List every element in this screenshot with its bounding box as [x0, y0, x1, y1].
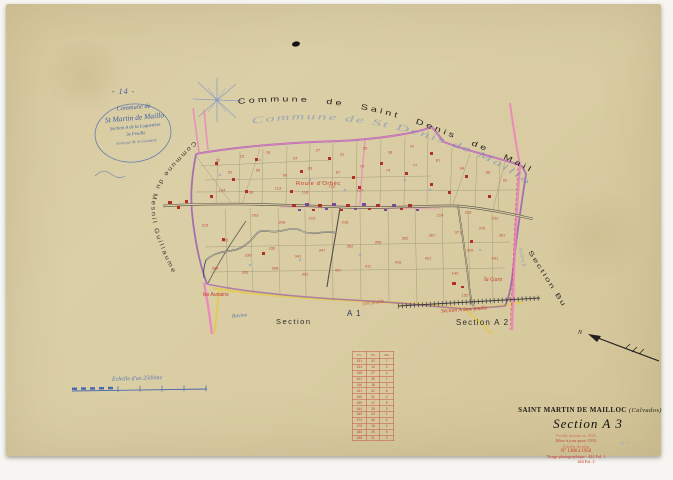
- table-column-header: N°s: [353, 352, 367, 359]
- parcel-number: 381: [499, 233, 506, 238]
- parcel-number: 367: [429, 233, 436, 238]
- gare-label: la Gare: [484, 277, 502, 283]
- table-cell: 3: [380, 435, 394, 441]
- parcel-number: 38: [388, 150, 392, 155]
- parcel-number: 421: [425, 256, 432, 261]
- parcel-number: 203: [252, 213, 259, 218]
- parcel-number: 52: [228, 170, 232, 175]
- parcel-number: 341: [295, 254, 302, 259]
- table-column-header: Obs: [380, 352, 394, 359]
- table-cell: 21: [366, 435, 380, 441]
- parcel-number: 35: [363, 146, 367, 151]
- parcel-number: 416: [395, 260, 402, 265]
- parcel-number: 228: [465, 210, 472, 215]
- parcel-number: 411: [365, 264, 371, 269]
- parcel-number: 27: [316, 148, 320, 153]
- parcel-number: 12: [216, 158, 220, 163]
- compass-rose-icon: [193, 78, 242, 122]
- parcel-number: 63: [308, 166, 312, 171]
- parcel-number: 74: [386, 168, 390, 173]
- parcel-number: 56: [256, 168, 260, 173]
- north-label: N: [577, 330, 583, 336]
- parcel-number: 376: [479, 226, 486, 231]
- parcel-number: 70: [360, 164, 364, 169]
- parcel-number: 358: [375, 240, 382, 245]
- north-arrow-icon: [588, 334, 659, 361]
- parcel-number: 113: [275, 186, 281, 191]
- table-cell: 188: [353, 435, 367, 441]
- parcel-number: 24: [293, 156, 297, 161]
- parcel-number: 84: [460, 166, 464, 171]
- hamlet-label: les Aunains: [203, 292, 229, 298]
- pencil-annotation: A =: [620, 441, 629, 447]
- parcel-number: 77: [413, 163, 417, 168]
- section-b-script: Section B: [517, 247, 526, 267]
- parcel-number: 127: [357, 188, 364, 193]
- parcel-number: 362: [402, 236, 409, 241]
- parcel-number: 347: [319, 248, 326, 253]
- parcel-number: 213: [309, 216, 316, 221]
- parcel-number: 336: [269, 246, 276, 251]
- parcel-number: 108: [247, 190, 254, 195]
- parcel-number: 224: [437, 213, 444, 218]
- parcel-number: 371: [455, 230, 462, 235]
- parcel-number: 152: [462, 293, 469, 298]
- section-a1-label: A 1: [347, 309, 362, 318]
- parcel-number: 330: [245, 253, 252, 258]
- section-a2-label: Section A 2: [456, 318, 509, 327]
- parcel-number: 81: [436, 158, 440, 163]
- parcel-number: 18: [266, 150, 270, 155]
- parcel-number: 15: [240, 154, 244, 159]
- parcel-number: 118: [302, 190, 308, 195]
- title-commune: SAINT MARTIN DE MAILLOC (Calvados): [514, 406, 666, 414]
- parcel-number: 388: [212, 266, 219, 271]
- table-row: 188213: [353, 435, 394, 441]
- table-column-header: N°s: [366, 352, 380, 359]
- parcel-number: 315: [202, 223, 209, 228]
- parcel-number: 393: [242, 270, 249, 275]
- table-header: N°sN°sObs: [353, 352, 394, 359]
- parcel-number: 208: [279, 220, 286, 225]
- parcel-number: 41: [410, 144, 414, 149]
- parcel-number: 67: [336, 170, 340, 175]
- parcel-number: 407: [335, 268, 342, 273]
- parcel-number: 218: [342, 220, 349, 225]
- parcel-number: 426: [467, 248, 474, 253]
- parcel-concordance-table: N°sN°sObs 131427134132138274141351146183…: [352, 351, 394, 441]
- parcel-number: 398: [272, 266, 279, 271]
- page-number: - 14 -: [112, 87, 135, 96]
- scanned-cadastral-map-page: N Commune de Saint Denis de Mailloc Comm…: [0, 0, 673, 480]
- parcel-number: 92: [503, 178, 507, 183]
- parcel-number: 352: [347, 244, 354, 249]
- neighbor-commune-top-script: Commune de St Denis de Mailloc: [0, 0, 533, 187]
- parcel-boundary-lines: [196, 131, 520, 306]
- parcel-number: 322: [222, 238, 229, 243]
- parcel-number: 402: [302, 272, 309, 277]
- scale-bar: [72, 385, 207, 392]
- title-section: Section A 3: [546, 416, 630, 432]
- parcel-number: 232: [492, 216, 499, 221]
- ink-blot: [292, 41, 301, 48]
- parcel-number: 31: [340, 152, 344, 157]
- parcel-number: 88: [486, 170, 490, 175]
- parcel-number: 149: [452, 271, 459, 276]
- parcel-number: 60: [283, 173, 287, 178]
- title-cartouche: Commune de St Martin de Maillo Section A…: [90, 100, 179, 147]
- section-b-label: Section Bu: [526, 249, 567, 309]
- section-word: Section: [276, 317, 312, 326]
- parcel-number: 104: [219, 188, 226, 193]
- title-note-2: Mise à jour pour 1933: [530, 438, 622, 443]
- neighbor-commune-left: Commune du Mesnil Guillaume: [149, 140, 197, 276]
- commune-name: SAINT MARTIN DE MAILLOC: [518, 406, 627, 414]
- departement-name: (Calvados): [629, 407, 662, 414]
- title-note-6: 444 Fol. 2: [540, 459, 632, 464]
- route-orbec-label: Route d'Orbéc: [296, 181, 341, 187]
- parcel-number: 431: [492, 256, 499, 261]
